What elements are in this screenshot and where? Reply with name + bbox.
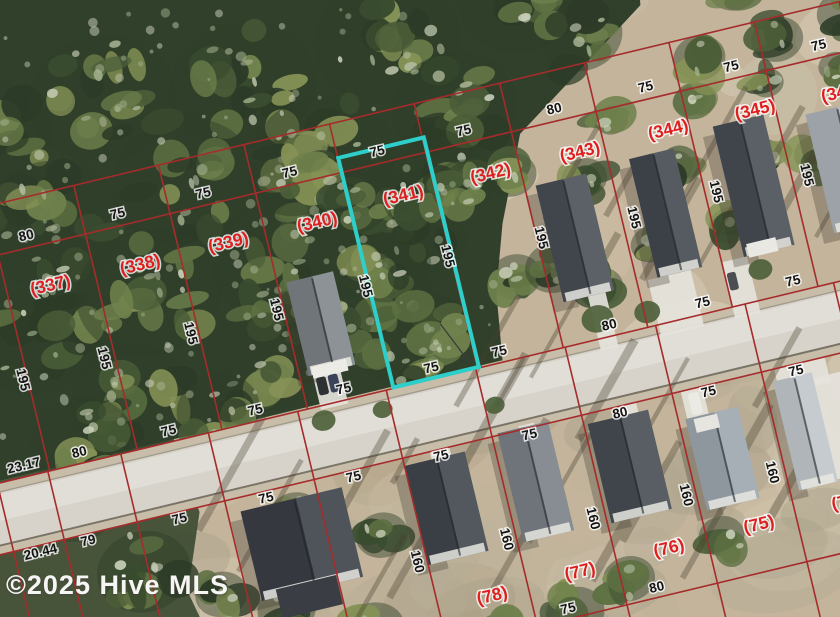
aerial-plat-map: 8075757575758075757523.17807575757575807… — [0, 0, 840, 617]
plat-svg: 8075757575758075757523.17807575757575807… — [0, 0, 840, 617]
plat-rotated-frame: 8075757575758075757523.17807575757575807… — [0, 0, 840, 617]
